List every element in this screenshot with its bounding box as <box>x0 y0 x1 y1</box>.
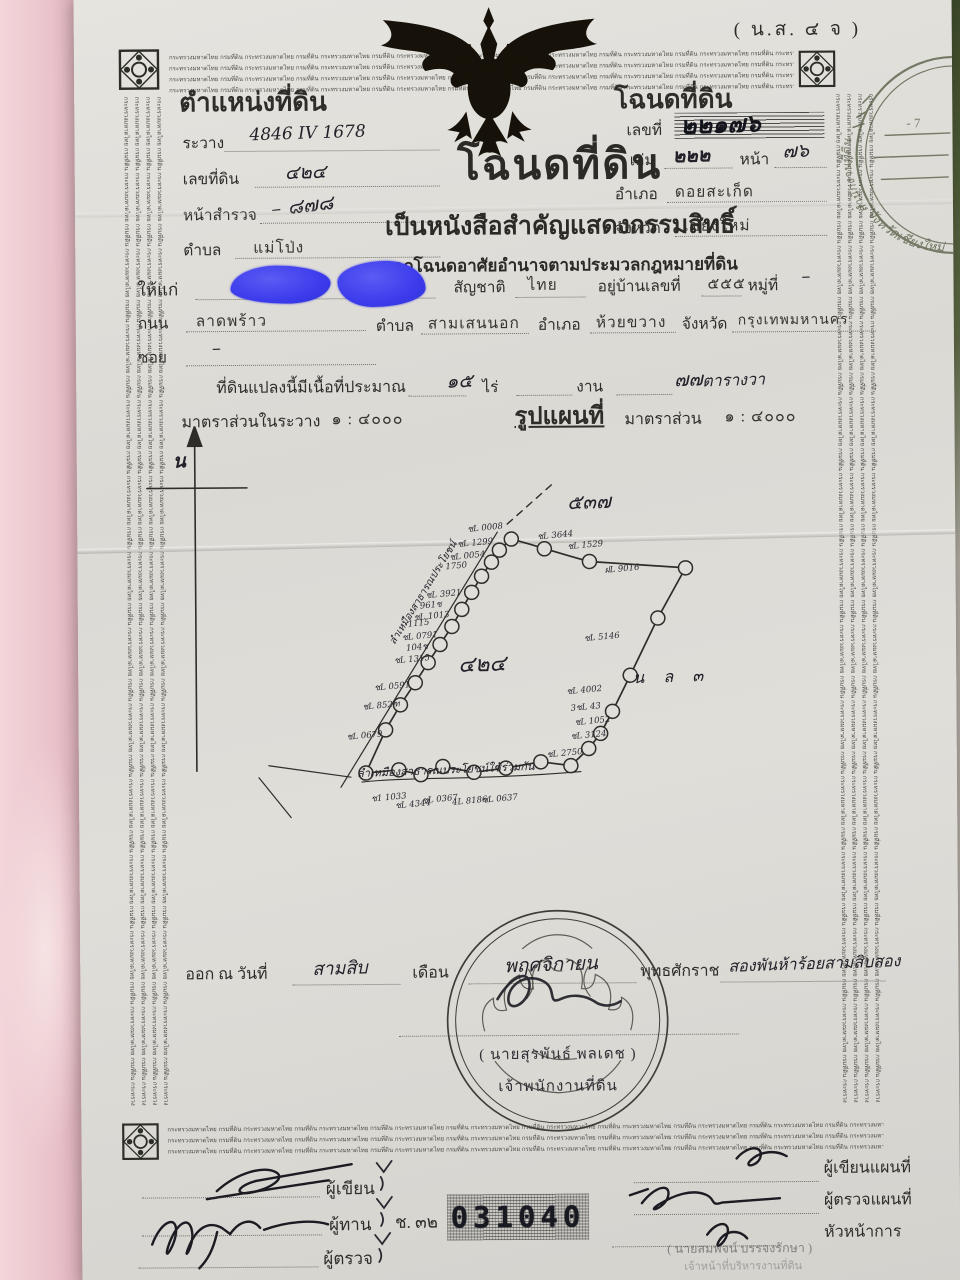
area-rai-label: ไร่ <box>482 374 498 399</box>
chief-label: หัวหน้าการ <box>824 1219 901 1245</box>
survey-marker-label: ชL 0637 <box>482 789 519 806</box>
grantee-province-value: กรุงเทพมหานคร <box>738 309 849 332</box>
batch-code: ช. ๓๒ <box>395 1209 438 1236</box>
moo-value: – <box>801 266 811 287</box>
survey-marker-label: ชL 0591 <box>374 677 411 694</box>
corner-rosette-top-left <box>118 48 160 90</box>
stamp-date-text: - 7 <box>906 115 921 130</box>
nationality-value: ไทย <box>527 272 557 297</box>
plot-number: ๔๒๔ <box>458 645 507 682</box>
survey-marker-label: ชL 5146 <box>583 628 620 645</box>
stamp-province-text: จังหวัดเชียงใหม่ <box>865 205 947 255</box>
moo-label: หมู่ที่ <box>747 272 778 297</box>
survey-marker-label: ชL 0679 <box>346 726 383 743</box>
neighbor-plot-right: น ล ๓ <box>633 664 711 692</box>
serial-number-field: 031040 <box>447 1194 589 1241</box>
area-wa-label: ตารางวา <box>702 367 766 394</box>
svg-text:จังหวัดเชียงใหม่: จังหวัดเชียงใหม่ <box>865 205 947 255</box>
redacted-grantee-name-2 <box>337 261 425 308</box>
position-block-title: ตำแหน่งที่ดิน <box>179 81 327 123</box>
survey-page-label: หน้าสำรวจ <box>183 202 257 228</box>
parcel-no-value: ๔๒๔ <box>284 157 326 188</box>
province-office-stamp: สำนักงานที่ดิน จังหวัดเชียงใหม่ - 7 <box>822 37 954 278</box>
survey-marker-label: ฝL 9016 <box>604 560 640 577</box>
map-examiner-label: ผู้ตรวจแผนที่ <box>824 1187 912 1213</box>
area-prefix: ที่ดินแปลงนี้มีเนื้อที่ประมาณ <box>216 375 406 401</box>
document-title: โฉนดที่ดิน <box>324 130 794 199</box>
area-wa-value: ๗๗ <box>674 364 704 395</box>
soi-label: ซอย <box>138 344 167 369</box>
survey-marker-label: ชL 3124 <box>570 726 607 743</box>
land-title-deed-page: กระทรวงมหาดไทย กรมที่ดิน กระทรวงมหาดไทย … <box>74 0 960 1280</box>
faint-officer-title: เจ้าหน้าที่บริหารงานที่ดิน <box>684 1256 802 1275</box>
checker-label: ผู้ทาน <box>329 1211 372 1238</box>
scale-right-value: ๑ : ๔๐๐๐ <box>724 404 796 430</box>
issue-prefix: ออก ณ วันที่ <box>185 962 267 988</box>
soi-value: – <box>212 338 222 359</box>
grantee-tambon-label: ตำบล <box>376 313 414 338</box>
survey-marker-label: ชL 4002 <box>566 681 603 698</box>
survey-marker-labels: ชL 0008ชL 1299ชL 00541750ชL 3921961ชชL 1… <box>117 423 720 857</box>
neighbor-plot-top: ๕๓๗ <box>567 485 612 518</box>
title-block: โฉนดที่ดิน เป็นหนังสือสำคัญแสดงกรรมสิทธิ… <box>324 130 795 280</box>
north-label: น <box>172 446 186 476</box>
house-no-value: ๕๕๕ <box>707 270 745 295</box>
photo-of-land-deed: กระทรวงมหาดไทย กรมที่ดิน กระทรวงมหาดไทย … <box>0 0 960 1280</box>
tambon-label: ตำบล <box>183 237 221 262</box>
seal-officer-name: ( นายสุรพันธ์ พลเดช ) <box>433 1041 683 1067</box>
cadastral-map: ชL 0008ชL 1299ชL 00541750ชL 3921961ชชL 1… <box>117 423 720 857</box>
seal-officer-title: เจ้าพนักงานที่ดิน <box>433 1073 683 1099</box>
survey-marker-label: ชL 852ฑ <box>362 696 401 713</box>
road-label: ถนน <box>138 310 169 335</box>
document-subtitle-1: เป็นหนังสือสำคัญแสดงกรรมสิทธิ์ <box>325 204 795 247</box>
writer-label: ผู้เขียน <box>326 1175 375 1202</box>
nationality-label: สัญชาติ <box>453 274 505 299</box>
issue-day: สามสิบ <box>312 952 368 983</box>
grantee-province-label: จังหวัด <box>682 311 728 336</box>
grantee-amphoe-label: อำเภอ <box>538 312 581 337</box>
redacted-grantee-name-1 <box>230 265 330 304</box>
rawang-label: ระวาง <box>182 130 224 155</box>
examiner-label: ผู้ตรวจ <box>323 1245 373 1272</box>
grantee-label: ให้แก่ <box>137 276 178 303</box>
survey-marker-label: ชL 2750 <box>546 744 583 761</box>
survey-marker-label: ชL 1529 <box>567 536 604 553</box>
survey-marker-label: ชL 1315 <box>394 650 431 667</box>
area-rai-value: ๑๕ <box>446 366 473 397</box>
official-seal <box>442 898 674 1150</box>
map-writer-label: ผู้เขียนแผนที่ <box>824 1155 911 1181</box>
pink-fabric-highlight <box>0 740 90 1160</box>
serial-number: 031040 <box>451 1200 586 1235</box>
parcel-no-label: เลขที่ดิน <box>183 166 239 191</box>
house-no-label: อยู่บ้านเลขที่ <box>597 273 680 299</box>
